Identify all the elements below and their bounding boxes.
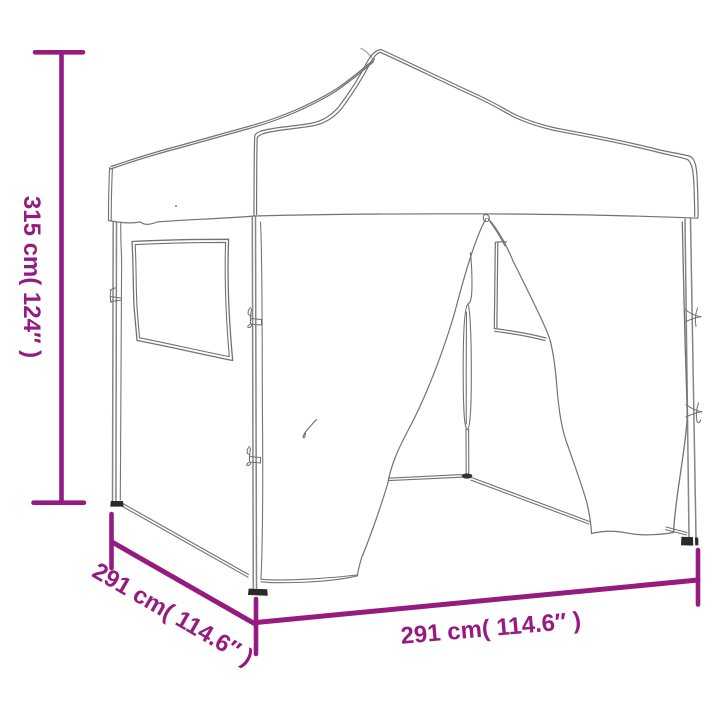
svg-text:315 cm( 124″ ): 315 cm( 124″ ) xyxy=(18,196,45,358)
svg-text:291 cm( 114.6″ ): 291 cm( 114.6″ ) xyxy=(400,607,583,650)
